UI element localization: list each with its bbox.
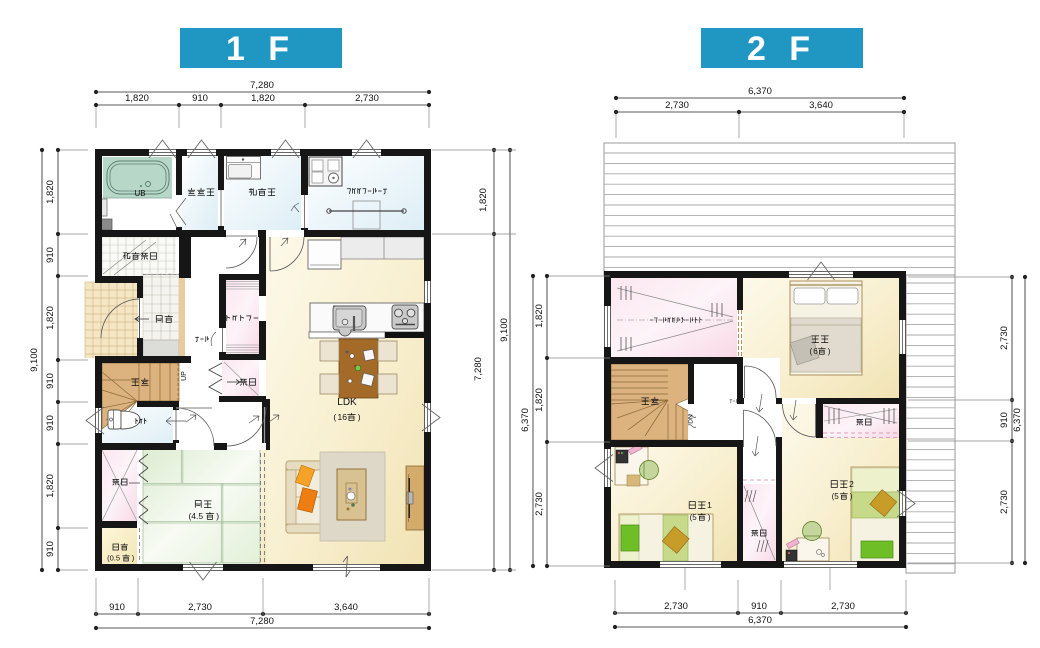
svg-text:): ) (358, 412, 361, 422)
svg-text:(: ( (810, 347, 813, 356)
svg-text:1,820: 1,820 (478, 188, 489, 212)
svg-text:2: 2 (849, 479, 854, 489)
svg-text:910: 910 (45, 373, 56, 389)
svg-text:(: ( (333, 412, 336, 422)
svg-text:6,370: 6,370 (748, 86, 772, 97)
svg-text:(4.5: (4.5 (188, 511, 203, 521)
svg-text:1,820: 1,820 (534, 304, 545, 328)
svg-text:UP: UP (181, 371, 188, 381)
svg-text:7,280: 7,280 (250, 616, 274, 627)
svg-text:2,730: 2,730 (999, 490, 1010, 514)
svg-text:1 F: 1 F (226, 30, 296, 68)
svg-text:): ) (828, 347, 831, 356)
svg-text:1,820: 1,820 (251, 93, 275, 104)
svg-text:2,730: 2,730 (831, 601, 855, 612)
svg-text:910: 910 (109, 602, 125, 613)
svg-text:(5: (5 (832, 492, 840, 501)
svg-text:LDK: LDK (337, 397, 357, 408)
svg-text:): ) (850, 492, 853, 501)
svg-text:910: 910 (45, 415, 56, 431)
svg-text:910: 910 (192, 93, 208, 104)
svg-text:(5: (5 (690, 513, 698, 522)
svg-text:1,820: 1,820 (45, 180, 56, 204)
svg-text:9,100: 9,100 (499, 318, 510, 342)
svg-text:6,370: 6,370 (1012, 408, 1023, 432)
svg-text:2,730: 2,730 (188, 602, 212, 613)
svg-text:(0.5: (0.5 (107, 554, 120, 563)
svg-text:1: 1 (707, 500, 712, 510)
svg-text:1,820: 1,820 (45, 306, 56, 330)
svg-text:910: 910 (45, 541, 56, 557)
svg-text:9,100: 9,100 (29, 348, 40, 372)
svg-text:6: 6 (813, 347, 818, 356)
svg-text:1,820: 1,820 (534, 388, 545, 412)
svg-text:): ) (216, 511, 219, 521)
svg-text:910: 910 (45, 247, 56, 263)
svg-text:1,820: 1,820 (125, 93, 149, 104)
svg-text:): ) (708, 513, 711, 522)
svg-text:910: 910 (999, 412, 1010, 428)
svg-text:3,640: 3,640 (334, 602, 358, 613)
svg-text:1,820: 1,820 (45, 474, 56, 498)
svg-text:2,730: 2,730 (999, 326, 1010, 350)
svg-text:7,280: 7,280 (473, 357, 484, 381)
svg-text:2 F: 2 F (747, 30, 817, 68)
svg-text:2,730: 2,730 (664, 601, 688, 612)
svg-text:910: 910 (751, 601, 767, 612)
svg-text:UB: UB (134, 189, 145, 198)
svg-text:2,730: 2,730 (534, 492, 545, 516)
svg-text:2,730: 2,730 (665, 100, 689, 111)
svg-text:DN: DN (688, 414, 695, 424)
svg-text:7,280: 7,280 (250, 80, 274, 91)
svg-text:6,370: 6,370 (748, 615, 772, 626)
svg-text:6,370: 6,370 (520, 408, 531, 432)
svg-text:16: 16 (338, 412, 348, 422)
svg-text:3,640: 3,640 (809, 100, 833, 111)
svg-text:2,730: 2,730 (355, 93, 379, 104)
